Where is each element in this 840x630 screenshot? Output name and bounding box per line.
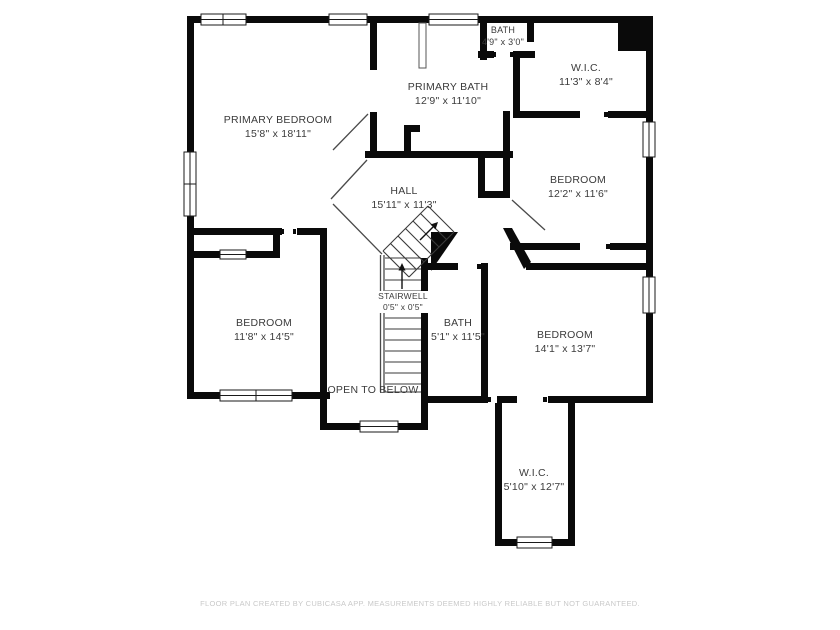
window: [360, 421, 398, 432]
room-label-wic-bottom: W.I.C. 5'10" x 12'7": [504, 467, 565, 495]
room-label-wic-top: W.I.C. 11'3" x 8'4": [559, 62, 613, 90]
room-name: BATH: [431, 317, 485, 331]
window: [329, 14, 367, 25]
room-label-bedroom-bottom: BEDROOM 14'1" x 13'7": [535, 329, 596, 357]
window: [201, 14, 246, 25]
room-name: W.I.C.: [504, 467, 565, 481]
room-label-bedroom-right: BEDROOM 12'2" x 11'6": [548, 174, 608, 202]
room-label-primary-bedroom: PRIMARY BEDROOM 15'8" x 18'11": [224, 114, 332, 142]
room-dimensions: 12'2" x 11'6": [548, 188, 608, 202]
bath-partition: [419, 23, 426, 68]
room-name: PRIMARY BEDROOM: [224, 114, 332, 128]
room-label-stairwell: STAIRWELL 0'5" x 0'5": [377, 291, 429, 313]
room-label-hall: HALL 15'11" x 11'3": [371, 185, 436, 213]
window: [517, 537, 552, 548]
room-dimensions: 4'9" x 3'0": [482, 37, 524, 49]
room-label-bedroom-left: BEDROOM 11'8" x 14'5": [234, 317, 294, 345]
room-name: PRIMARY BATH: [408, 81, 489, 95]
room-dimensions: 5'1" x 11'5": [431, 331, 485, 345]
room-name: BEDROOM: [548, 174, 608, 188]
window: [184, 152, 196, 216]
room-dimensions: 0'5" x 0'5": [378, 302, 428, 313]
window: [429, 14, 478, 25]
room-name: BEDROOM: [535, 329, 596, 343]
room-dimensions: 14'1" x 13'7": [535, 343, 596, 357]
room-name: STAIRWELL: [378, 291, 428, 302]
room-label-open-to-below: OPEN TO BELOW: [328, 384, 419, 398]
room-name: HALL: [371, 185, 436, 199]
disclaimer-text: FLOOR PLAN CREATED BY CUBICASA APP. MEAS…: [0, 599, 840, 608]
room-name: BATH: [482, 25, 524, 37]
room-dimensions: 11'3" x 8'4": [559, 76, 613, 90]
room-dimensions: 12'9" x 11'10": [408, 95, 489, 109]
room-name: BEDROOM: [234, 317, 294, 331]
floor-plan-page: PRIMARY BEDROOM 15'8" x 18'11" PRIMARY B…: [0, 0, 840, 630]
room-dimensions: 15'8" x 18'11": [224, 128, 332, 142]
cased-opening: [220, 250, 246, 259]
window: [220, 390, 292, 401]
room-dimensions: 11'8" x 14'5": [234, 331, 294, 345]
room-name: W.I.C.: [559, 62, 613, 76]
room-label-bath-center: BATH 5'1" x 11'5": [431, 317, 485, 345]
room-label-primary-bath: PRIMARY BATH 12'9" x 11'10": [408, 81, 489, 109]
window: [643, 277, 655, 313]
room-dimensions: 5'10" x 12'7": [504, 481, 565, 495]
room-dimensions: 15'11" x 11'3": [371, 199, 436, 213]
window: [643, 122, 655, 157]
room-name: OPEN TO BELOW: [328, 384, 419, 398]
room-label-bath-top: BATH 4'9" x 3'0": [482, 25, 524, 49]
